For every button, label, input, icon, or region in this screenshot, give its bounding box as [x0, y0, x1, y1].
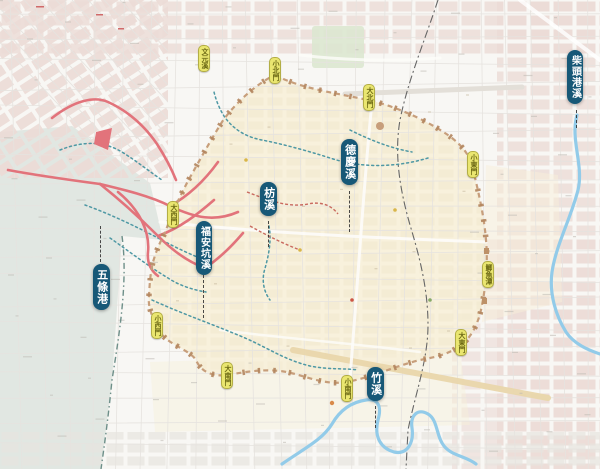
- gate-label-xiaoximen: 小西門: [151, 312, 163, 339]
- gate-label-xiaodongmen: 小東門: [467, 151, 479, 178]
- stream-label-fangxi: 枋溪: [260, 182, 277, 216]
- gate-label-daximen: 大西門: [167, 201, 179, 228]
- gate-label-xiaonanmen: 小南門: [341, 375, 353, 402]
- leader-line-chaitougangxi: [576, 110, 577, 128]
- leader-line-fangxi: [268, 221, 269, 247]
- leader-line-zhuxi: [375, 406, 376, 428]
- leader-line-deqingxi: [349, 191, 350, 232]
- gate-label-dabeimen: 大北門: [363, 84, 375, 111]
- map-canvas: [0, 0, 600, 469]
- roundabout-node: [376, 122, 384, 130]
- leader-line-wutiaogang: [100, 226, 101, 262]
- stream-label-zhuxi: 竹溪: [367, 367, 384, 401]
- gate-label-xiaobeimen: 小北門: [269, 57, 281, 84]
- leader-line-fuankengxi: [203, 275, 204, 318]
- gate-label-dadongmen: 大東門: [455, 329, 467, 356]
- stream-label-fuankengxi: 福安坑溪: [196, 221, 212, 275]
- temple-icon: [330, 401, 334, 405]
- gate-label-jiyutan: 鯽魚潭: [482, 261, 494, 288]
- stream-label-chaitougangxi: 柴頭港溪: [567, 50, 583, 104]
- gate-label-dananmen: 大南門: [221, 362, 233, 389]
- stream-label-deqingxi: 德慶溪: [341, 139, 358, 185]
- gate-label-wenyuanxi: 文元溪: [198, 45, 210, 72]
- stream-label-wutiaogang: 五條港: [93, 264, 110, 310]
- tainan-historic-waterways-map: 五條港福安坑溪枋溪德慶溪竹溪柴頭港溪文元溪小北門大北門小東門鯽魚潭大東門小南門大…: [0, 0, 600, 469]
